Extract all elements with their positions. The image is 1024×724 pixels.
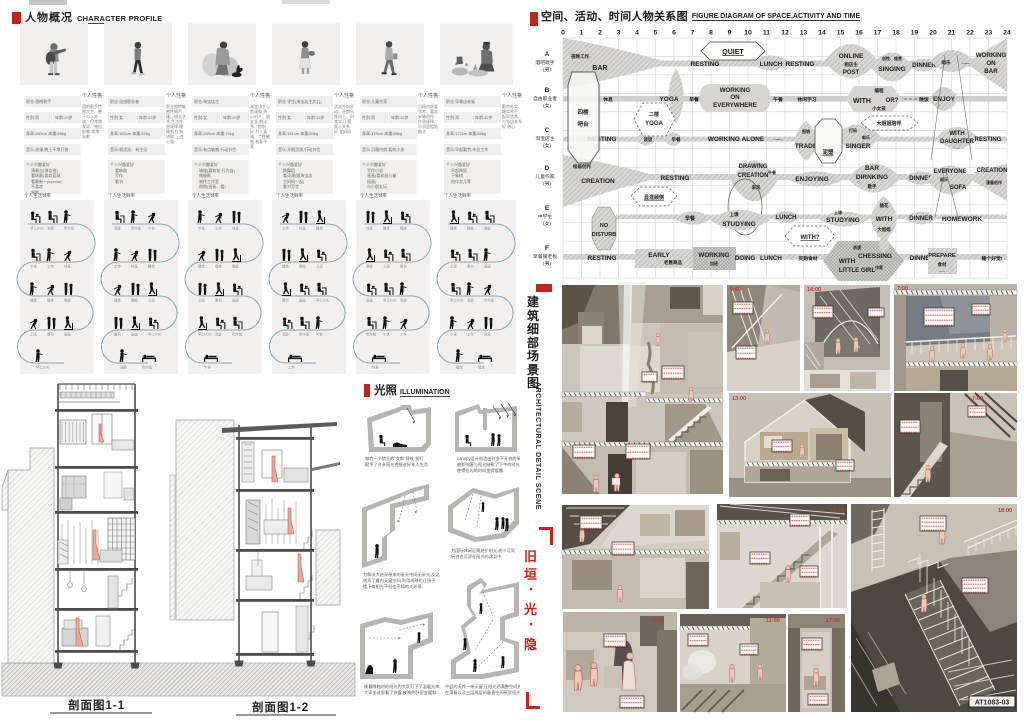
- svg-text:上班: 上班: [383, 264, 390, 269]
- svg-text:洗漱: 洗漱: [114, 226, 121, 231]
- svg-text:个人生活频率: 个人生活频率: [276, 192, 303, 199]
- svg-text:9:00: 9:00: [730, 287, 741, 293]
- svg-text:被影响客与阳光映射了下午的时光感受: 被影响客与阳光映射了下午的时光感受: [457, 461, 520, 468]
- svg-text:睡觉: 睡觉: [383, 226, 390, 231]
- svg-text:(女): (女): [543, 102, 551, 109]
- svg-text:PREPARE: PREPARE: [928, 253, 956, 259]
- svg-text:ENJOY: ENJOY: [933, 96, 956, 103]
- svg-text:插花: 插花: [880, 202, 889, 209]
- svg-text:午休: 午休: [383, 332, 390, 337]
- svg-text:看书: 看书: [400, 264, 407, 269]
- svg-text:午餐: 午餐: [768, 169, 777, 175]
- svg-text:锻炼: 锻炼: [114, 298, 121, 303]
- svg-text:canopy设计创造出许多不开放的采光,将: canopy设计创造出许多不开放的采光,将: [457, 455, 520, 462]
- svg-text:SINGING: SINGING: [878, 66, 905, 73]
- svg-text:早餐: 早餐: [672, 136, 681, 143]
- svg-text:14:00: 14:00: [807, 287, 821, 293]
- svg-text:看书: 看书: [215, 298, 222, 303]
- svg-text:......: ......: [962, 60, 970, 65]
- svg-text:DRAWING: DRAWING: [739, 164, 768, 170]
- svg-text:18:00: 18:00: [998, 508, 1012, 514]
- svg-text:上班: 上班: [198, 298, 205, 303]
- svg-text:吃午饭: 吃午饭: [142, 365, 153, 370]
- svg-text:早上9:00: 早上9:00: [198, 332, 211, 337]
- svg-text:工作: 工作: [47, 264, 54, 269]
- svg-text:早上9:00: 早上9:00: [30, 226, 43, 231]
- svg-text:编程: 编程: [875, 87, 884, 94]
- svg-text:上课: 上课: [730, 211, 739, 218]
- svg-text:A: A: [545, 51, 550, 58]
- svg-text:TRADE: TRADE: [795, 143, 818, 150]
- svg-text:睡觉: 睡觉: [148, 264, 155, 269]
- svg-text:早餐铺老板: 早餐铺老板: [533, 253, 557, 260]
- svg-text:午休: 午休: [148, 226, 155, 231]
- svg-text:(女): (女): [543, 220, 551, 227]
- svg-text:WORKING: WORKING: [698, 252, 729, 259]
- svg-text:SOFA: SOFA: [950, 185, 967, 191]
- svg-text:看书: 看书: [467, 264, 474, 269]
- svg-text:午休: 午休: [450, 332, 457, 337]
- svg-text:吃午饭: 吃午饭: [366, 332, 377, 337]
- svg-text:相店主: 相店主: [844, 61, 858, 68]
- svg-text:(男): (男): [543, 67, 551, 73]
- svg-text:大姐姐: 大姐姐: [877, 226, 891, 233]
- svg-text:晚饭: 晚饭: [366, 264, 373, 269]
- svg-text:DIRNKING: DIRNKING: [856, 174, 888, 181]
- svg-text:15: 15: [837, 30, 845, 37]
- svg-text:锻炼: 锻炼: [215, 264, 222, 269]
- svg-text:1: 1: [580, 30, 584, 37]
- svg-text:晚饭: 晚饭: [919, 96, 929, 103]
- svg-text:谈饭: 谈饭: [644, 136, 653, 143]
- svg-text:STUDYING: STUDYING: [826, 217, 860, 224]
- svg-text:睡觉: 睡觉: [198, 264, 205, 269]
- svg-text:大姐姐陪伴: 大姐姐陪伴: [876, 120, 901, 127]
- svg-text:NO: NO: [600, 223, 609, 229]
- svg-text:小女孩: 小女孩: [872, 105, 886, 112]
- svg-text:早上9:00: 早上9:00: [316, 298, 329, 303]
- svg-text:漫画创作: 漫画创作: [986, 179, 1002, 185]
- svg-text:每为一个错光的“女郎”建筑,我们: 每为一个错光的“女郎”建筑,我们: [365, 455, 423, 462]
- svg-text:(男): (男): [543, 261, 551, 267]
- svg-text:玩浪也沉浸在阳光的沐浴中.: 玩浪也沉浸在阳光的沐浴中.: [451, 553, 502, 560]
- svg-text:画画: 画画: [366, 298, 373, 303]
- svg-text:LUNCH: LUNCH: [760, 61, 783, 68]
- svg-text:创性、维意: 创性、维意: [881, 55, 902, 61]
- svg-text:(女): (女): [543, 142, 551, 149]
- svg-text:B: B: [545, 87, 550, 94]
- svg-text:EVERYWHERE: EVERYWHERE: [713, 102, 757, 109]
- svg-text:CREATION: CREATION: [738, 173, 769, 179]
- svg-text:睡个好觉!: 睡个好觉!: [982, 255, 1003, 262]
- svg-text:四楼: 四楼: [577, 108, 589, 116]
- svg-text:WITH?: WITH?: [801, 235, 820, 241]
- svg-text:C: C: [545, 127, 550, 134]
- svg-text:WORKING ALONE: WORKING ALONE: [708, 136, 765, 143]
- svg-text:锻炼: 锻炼: [282, 264, 289, 269]
- svg-text:绘画创作: 绘画创作: [573, 163, 591, 170]
- svg-text:LUNCH: LUNCH: [760, 255, 782, 262]
- svg-text:散手: 散手: [868, 183, 877, 190]
- svg-text:EVERYONE: EVERYONE: [933, 169, 966, 175]
- svg-text:YOGA: YOGA: [645, 121, 663, 127]
- svg-text:为国际休闲区随处扩射光,老少可同: 为国际休闲区随处扩射光,老少可同: [451, 547, 515, 554]
- svg-text:RESTING: RESTING: [588, 255, 617, 262]
- svg-text:12:00: 12:00: [650, 618, 664, 624]
- svg-text:早上9:00: 早上9:00: [383, 298, 396, 303]
- svg-text:工作: 工作: [114, 264, 121, 269]
- svg-text:午休: 午休: [30, 264, 37, 269]
- svg-text:ON: ON: [730, 94, 740, 101]
- svg-text:LITTLE GIRL: LITTLE GIRL: [839, 268, 876, 274]
- svg-text:洗漱: 洗漱: [47, 226, 54, 231]
- svg-text:洗漱: 洗漱: [282, 332, 289, 337]
- svg-text:吃午饭: 吃午饭: [299, 332, 310, 337]
- svg-text:食材: 食材: [938, 261, 947, 268]
- svg-text:二楼: 二楼: [649, 111, 659, 118]
- svg-text:WORKING: WORKING: [720, 87, 751, 94]
- svg-text:个人生活频率: 个人生活频率: [444, 192, 471, 199]
- svg-text:午休: 午休: [198, 226, 205, 231]
- svg-text:5: 5: [654, 30, 658, 37]
- svg-text:RESTING: RESTING: [786, 61, 815, 68]
- svg-text:锻炼: 锻炼: [467, 226, 474, 231]
- svg-text:休息: 休息: [64, 264, 71, 269]
- svg-text:7:00: 7:00: [972, 396, 983, 402]
- svg-text:23: 23: [985, 30, 993, 37]
- svg-text:WORKING: WORKING: [976, 52, 1007, 59]
- svg-text:22: 22: [966, 30, 974, 37]
- svg-text:工作: 工作: [282, 226, 289, 231]
- svg-text:9: 9: [728, 30, 732, 37]
- svg-text:OR?: OR?: [886, 98, 899, 104]
- svg-text:BAR: BAR: [865, 165, 879, 172]
- svg-text:洗漱: 洗漱: [467, 298, 474, 303]
- svg-text:赋予了许多阳光透镜进好年人生活.: 赋予了许多阳光透镜进好年人生活.: [365, 461, 429, 468]
- svg-text:WITH: WITH: [853, 98, 871, 105]
- svg-text:午休: 午休: [204, 365, 211, 370]
- svg-text:泥塑: 泥塑: [822, 148, 834, 156]
- svg-text:工作: 工作: [288, 365, 295, 370]
- svg-text:工作: 工作: [400, 332, 407, 337]
- svg-text:12: 12: [781, 30, 789, 37]
- svg-text:6: 6: [672, 30, 676, 37]
- svg-text:看书: 看书: [282, 298, 289, 303]
- svg-text:休息: 休息: [484, 332, 491, 337]
- svg-text:17:00: 17:00: [826, 618, 840, 624]
- svg-text:13: 13: [800, 30, 808, 37]
- svg-text:休息: 休息: [232, 226, 239, 231]
- svg-text:睡觉: 睡觉: [316, 226, 323, 231]
- svg-text:夜暮降临时的阳光为大家打下了温暖光束,: 夜暮降临时的阳光为大家打下了温暖光束,: [364, 683, 441, 690]
- svg-text:(男): (男): [543, 181, 551, 187]
- svg-text:画画: 画画: [299, 298, 306, 303]
- svg-text:睡觉: 睡觉: [456, 365, 463, 370]
- svg-text:0: 0: [561, 30, 565, 37]
- svg-text:YOGA: YOGA: [659, 96, 678, 103]
- svg-text:17: 17: [874, 30, 882, 37]
- svg-text:早餐: 早餐: [689, 96, 699, 103]
- svg-text:AT1083-03: AT1083-03: [975, 700, 1010, 707]
- svg-text:工作: 工作: [467, 332, 474, 337]
- svg-text:CREATION: CREATION: [977, 168, 1008, 174]
- svg-text:在用餐以及三层两层的垂直空间感受阳光.: 在用餐以及三层两层的垂直空间感受阳光.: [445, 689, 520, 696]
- svg-text:买购食材: 买购食材: [798, 255, 817, 262]
- svg-text:显混顾侧: 显混顾侧: [644, 194, 664, 201]
- svg-text:睡觉: 睡觉: [450, 226, 457, 231]
- svg-text:F: F: [545, 245, 549, 252]
- svg-text:细乐: 细乐: [940, 176, 948, 182]
- svg-text:13:00: 13:00: [732, 396, 746, 402]
- svg-text:个人生活频率: 个人生活频率: [192, 192, 219, 199]
- svg-text:中学生: 中学生: [538, 213, 553, 220]
- svg-text:RESTING: RESTING: [661, 175, 690, 182]
- svg-text:吃午饭: 吃午饭: [232, 332, 243, 337]
- svg-text:18: 18: [892, 30, 900, 37]
- svg-text:看书: 看书: [114, 332, 121, 337]
- svg-text:20: 20: [929, 30, 937, 37]
- svg-text:BAR: BAR: [984, 68, 998, 75]
- svg-text:WITH: WITH: [876, 216, 893, 223]
- svg-text:SINGER: SINGER: [846, 143, 871, 150]
- svg-text:7:00: 7:00: [897, 286, 908, 292]
- svg-text:......: ......: [954, 146, 960, 150]
- svg-text:16: 16: [855, 30, 863, 37]
- svg-text:POST: POST: [843, 70, 860, 76]
- svg-text:画画: 画画: [131, 332, 138, 337]
- svg-text:个人生活频率: 个人生活频率: [24, 192, 51, 199]
- svg-text:剖面图1-2: 剖面图1-2: [252, 700, 309, 714]
- svg-text:吧台: 吧台: [577, 120, 589, 128]
- svg-text:晚饭: 晚饭: [484, 226, 491, 231]
- svg-text:唱乐: 唱乐: [942, 59, 951, 66]
- svg-text:浪漫: 浪漫: [853, 244, 861, 250]
- svg-text:邮乐: 邮乐: [862, 134, 870, 140]
- svg-text:休息: 休息: [131, 264, 138, 269]
- svg-text:淘宝店主: 淘宝店主: [535, 135, 554, 142]
- svg-text:则声了露内天窗空间,利用成熟也让孩子: 则声了露内天窗空间,利用成熟也让孩子: [363, 577, 435, 584]
- svg-text:上班: 上班: [30, 332, 37, 337]
- svg-text:画画: 画画: [64, 332, 71, 337]
- svg-text:ENJOYING: ENJOYING: [795, 176, 829, 183]
- svg-text:2: 2: [598, 30, 602, 37]
- svg-text:WITH: WITH: [839, 258, 856, 265]
- svg-text:晚饭: 晚饭: [64, 298, 71, 303]
- svg-text:画画: 画画: [232, 298, 239, 303]
- svg-text:LUNCH: LUNCH: [776, 215, 797, 221]
- svg-text:DOING: DOING: [735, 255, 755, 262]
- svg-text:休息: 休息: [602, 96, 613, 103]
- svg-text:STUDYING: STUDYING: [722, 221, 756, 228]
- svg-text:上班: 上班: [450, 264, 457, 269]
- svg-text:酒吧歌手: 酒吧歌手: [535, 59, 554, 66]
- svg-text:为解决大进深带来的采光中间无采光,反之: 为解决大进深带来的采光中间无采光,反之: [363, 571, 440, 578]
- svg-text:工作: 工作: [215, 226, 222, 231]
- svg-text:报销: 报销: [802, 128, 810, 134]
- svg-text:HOMEWORK: HOMEWORK: [942, 216, 982, 223]
- svg-text:午餐: 午餐: [773, 96, 783, 103]
- svg-text:夜晚工作: 夜晚工作: [570, 53, 589, 60]
- svg-text:上课: 上课: [834, 209, 843, 215]
- svg-text:早上9:00: 早上9:00: [148, 332, 161, 337]
- svg-text:锻炼: 锻炼: [47, 298, 54, 303]
- svg-text:晚饭: 晚饭: [131, 298, 138, 303]
- svg-text:D: D: [545, 165, 550, 172]
- svg-text:E: E: [545, 205, 550, 212]
- svg-text:休息: 休息: [366, 226, 373, 231]
- svg-text:休息: 休息: [299, 226, 306, 231]
- svg-text:BAR: BAR: [592, 65, 607, 72]
- svg-text:打码: 打码: [849, 127, 857, 133]
- svg-text:......: ......: [774, 136, 782, 141]
- svg-text:晚饭: 晚饭: [232, 264, 239, 269]
- svg-text:RESTING: RESTING: [975, 137, 1002, 143]
- svg-text:12:00: 12:00: [830, 508, 844, 514]
- svg-text:洗漱: 洗漱: [400, 298, 407, 303]
- svg-text:吃午饭: 吃午饭: [131, 226, 142, 231]
- svg-text:作家: 作家: [875, 264, 884, 270]
- svg-text:锻炼: 锻炼: [400, 226, 407, 231]
- svg-text:休闲学习: 休闲学习: [796, 96, 816, 103]
- svg-text:11: 11: [763, 30, 770, 37]
- svg-text:看书: 看书: [47, 332, 54, 337]
- svg-text:睡觉: 睡觉: [30, 298, 37, 303]
- svg-text:21: 21: [948, 30, 956, 37]
- svg-text:ONLINE: ONLINE: [839, 53, 864, 60]
- svg-text:8: 8: [709, 30, 713, 37]
- svg-text:个人生活频率: 个人生活频率: [108, 192, 135, 199]
- svg-text:老售商品: 老售商品: [663, 259, 682, 266]
- svg-text:锻炼: 锻炼: [478, 365, 485, 370]
- svg-text:大家坐这里看了快霞,夜晚的卧室变暖和.: 大家坐这里看了快霞,夜晚的卧室变暖和.: [364, 689, 438, 696]
- svg-text:早上9:00: 早上9:00: [450, 298, 463, 303]
- svg-text:14: 14: [818, 30, 826, 37]
- svg-text:早餐: 早餐: [685, 215, 696, 222]
- svg-text:吃午饭: 吃午饭: [484, 298, 495, 303]
- svg-text:休息: 休息: [372, 365, 379, 370]
- svg-text:QUIET: QUIET: [722, 49, 744, 56]
- svg-text:吃午饭: 吃午饭: [64, 226, 75, 231]
- svg-text:早上9:00: 早上9:00: [36, 365, 49, 370]
- svg-text:上班: 上班: [148, 298, 155, 303]
- svg-text:19: 19: [911, 30, 919, 37]
- svg-text:EARLY: EARLY: [648, 252, 670, 259]
- svg-text:画画: 画画: [484, 264, 491, 269]
- svg-text:自由职业者: 自由职业者: [533, 95, 557, 102]
- svg-text:午休: 午休: [316, 332, 323, 337]
- svg-text:RESTING: RESTING: [691, 61, 720, 68]
- svg-text:晚饭: 晚饭: [299, 264, 306, 269]
- svg-text:儿童作家: 儿童作家: [535, 173, 554, 180]
- svg-text:个人生活频率: 个人生活频率: [360, 192, 387, 199]
- svg-text:CREATION: CREATION: [581, 178, 615, 185]
- svg-text:中庭的天井一带天窗,让阳光洒满整空间充盈: 中庭的天井一带天窗,让阳光洒满整空间充盈: [445, 683, 520, 690]
- svg-text:加班: 加班: [709, 260, 718, 266]
- svg-text:......: ......: [939, 269, 945, 273]
- svg-text:DISTURB: DISTURB: [592, 232, 616, 238]
- svg-text:24: 24: [1003, 30, 1011, 37]
- svg-text:10: 10: [744, 30, 752, 37]
- svg-text:CHESSING: CHESSING: [858, 253, 892, 260]
- svg-text:11:00: 11:00: [766, 618, 780, 624]
- svg-text:剖面图1-1: 剖面图1-1: [68, 698, 125, 712]
- svg-text:7: 7: [691, 30, 695, 37]
- svg-text:楼下每阳光不但也不知的光环境.: 楼下每阳光不但也不知的光环境.: [363, 583, 423, 590]
- svg-text:WITH: WITH: [949, 131, 964, 137]
- svg-text:洗漱: 洗漱: [215, 332, 222, 337]
- svg-text:ON: ON: [986, 60, 996, 67]
- svg-text:使得在内的时间变得缓慢.: 使得在内的时间变得缓慢.: [457, 467, 504, 474]
- svg-text:上班: 上班: [316, 264, 323, 269]
- svg-text:DINNER: DINNER: [909, 215, 933, 222]
- svg-text:4: 4: [635, 30, 639, 37]
- svg-text:3: 3: [617, 30, 621, 37]
- svg-text:洗漱: 洗漱: [120, 365, 127, 370]
